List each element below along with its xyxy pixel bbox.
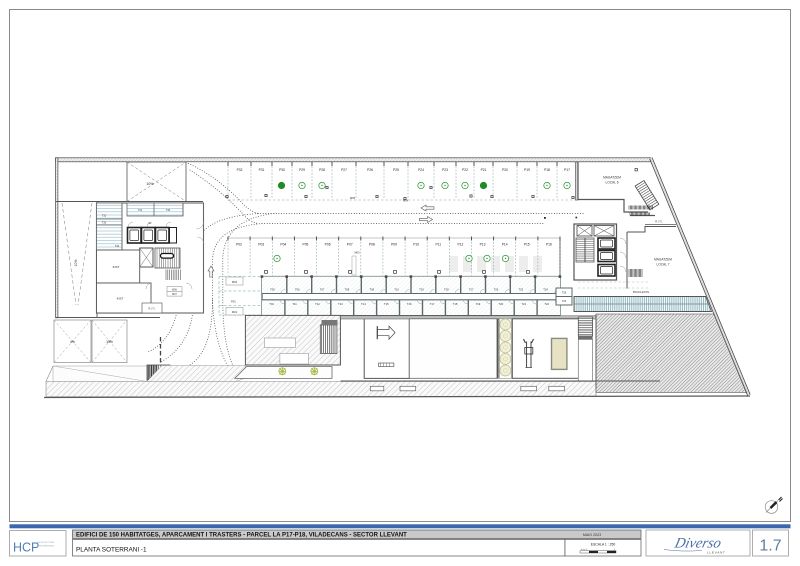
svg-text:P11: P11 — [435, 242, 441, 246]
svg-text:T21: T21 — [521, 302, 526, 306]
svg-text:P21: P21 — [481, 168, 487, 172]
svg-text:M03: M03 — [354, 251, 360, 255]
svg-text:T33: T33 — [102, 222, 107, 225]
svg-text:T15: T15 — [384, 302, 389, 306]
svg-text:10%: 10% — [146, 182, 154, 186]
svg-text:P27: P27 — [341, 168, 347, 172]
svg-text:T08: T08 — [345, 287, 350, 291]
svg-text:1.7: 1.7 — [759, 538, 781, 555]
svg-text:19%: 19% — [106, 340, 113, 344]
svg-text:T31: T31 — [138, 209, 143, 212]
svg-text:INST: INST — [113, 265, 120, 269]
svg-text:ESCALA 1 : 250: ESCALA 1 : 250 — [591, 543, 616, 547]
svg-text:P09: P09 — [391, 242, 397, 246]
svg-text:P17: P17 — [564, 168, 570, 172]
svg-text:P20: P20 — [502, 168, 508, 172]
svg-text:T26: T26 — [562, 292, 567, 295]
svg-text:10%: 10% — [74, 260, 78, 267]
svg-text:P01: P01 — [231, 300, 236, 304]
svg-text:T06: T06 — [295, 287, 300, 291]
svg-text:T18: T18 — [453, 302, 458, 306]
svg-text:M07: M07 — [172, 293, 177, 296]
svg-text:T24: T24 — [543, 287, 548, 291]
svg-text:T20: T20 — [499, 302, 504, 306]
svg-text:T05: T05 — [270, 287, 275, 291]
svg-text:P08: P08 — [369, 242, 375, 246]
svg-text:T22: T22 — [544, 302, 549, 306]
svg-text:LOCAL 6: LOCAL 6 — [606, 181, 619, 185]
svg-text:INST: INST — [117, 297, 124, 301]
svg-text:R.I.T.I.: R.I.T.I. — [149, 308, 156, 311]
svg-text:P31: P31 — [259, 168, 265, 172]
svg-text:MAGATZEM: MAGATZEM — [654, 258, 672, 262]
svg-text:P04: P04 — [280, 242, 286, 246]
svg-text:LOCAL 7: LOCAL 7 — [657, 263, 670, 267]
svg-text:P29: P29 — [299, 168, 305, 172]
svg-text:& ENGINEERING: & ENGINEERING — [37, 546, 55, 548]
svg-text:P06: P06 — [325, 242, 331, 246]
svg-text:P26: P26 — [367, 168, 373, 172]
svg-text:T12: T12 — [315, 302, 320, 306]
svg-text:P07: P07 — [347, 242, 353, 246]
svg-text:ARCHITECTURE: ARCHITECTURE — [37, 541, 55, 544]
svg-text:Diverso: Diverso — [672, 536, 723, 552]
svg-text:P28: P28 — [319, 168, 325, 172]
svg-text:M05: M05 — [350, 196, 356, 200]
svg-text:P30: P30 — [279, 168, 285, 172]
svg-text:T29: T29 — [419, 287, 424, 291]
svg-text:P22: P22 — [462, 168, 468, 172]
svg-text:M02: M02 — [232, 280, 238, 284]
svg-text:T07: T07 — [320, 287, 325, 291]
svg-text:T01: T01 — [269, 302, 274, 306]
svg-text:MAGATZEM: MAGATZEM — [603, 176, 621, 180]
svg-text:P12: P12 — [457, 242, 463, 246]
svg-text:BICICLETAS: BICICLETAS — [633, 290, 649, 294]
svg-text:T19: T19 — [476, 302, 481, 306]
svg-text:P10: P10 — [413, 242, 419, 246]
svg-text:T27: T27 — [469, 287, 474, 291]
svg-text:M01: M01 — [232, 310, 238, 314]
svg-text:P23: P23 — [442, 168, 448, 172]
svg-text:EDIFICI DE 150 HABITATGES, APA: EDIFICI DE 150 HABITATGES, APARCAMENT I … — [76, 533, 407, 539]
svg-text:M04: M04 — [403, 199, 409, 203]
svg-text:MAIG 2023: MAIG 2023 — [583, 533, 601, 537]
svg-text:T17: T17 — [430, 302, 435, 306]
svg-text:T34: T34 — [115, 245, 120, 248]
svg-text:P05: P05 — [303, 242, 309, 246]
svg-text:T32: T32 — [102, 215, 107, 218]
svg-text:HCP: HCP — [13, 541, 39, 555]
svg-text:P18: P18 — [544, 168, 550, 172]
svg-text:T09: T09 — [369, 287, 374, 291]
svg-text:T25: T25 — [518, 287, 523, 291]
svg-text:T11: T11 — [292, 302, 297, 306]
svg-text:T10: T10 — [394, 287, 399, 291]
svg-text:P19: P19 — [524, 168, 530, 172]
svg-text:4%: 4% — [70, 340, 75, 344]
svg-text:P25: P25 — [393, 168, 399, 172]
svg-text:P32: P32 — [237, 168, 243, 172]
svg-text:P14: P14 — [502, 242, 508, 246]
svg-text:T26: T26 — [494, 287, 499, 291]
svg-text:T28: T28 — [444, 287, 449, 291]
svg-text:T30: T30 — [166, 209, 171, 212]
svg-text:T23: T23 — [562, 300, 567, 303]
svg-text:L L E V A N T: L L E V A N T — [707, 551, 725, 555]
svg-text:P13: P13 — [480, 242, 486, 246]
svg-text:T13: T13 — [338, 302, 343, 306]
svg-text:M06: M06 — [172, 288, 177, 291]
svg-text:P02: P02 — [236, 242, 242, 246]
svg-text:PLANTA SOTERRANI -1: PLANTA SOTERRANI -1 — [76, 547, 147, 554]
svg-text:T14: T14 — [361, 302, 366, 306]
svg-text:P24: P24 — [418, 168, 424, 172]
svg-text:P16: P16 — [546, 242, 552, 246]
svg-text:P15: P15 — [524, 242, 530, 246]
svg-text:T16: T16 — [407, 302, 412, 306]
svg-text:P03: P03 — [258, 242, 264, 246]
svg-text:R.I.T.I.: R.I.T.I. — [655, 220, 663, 224]
